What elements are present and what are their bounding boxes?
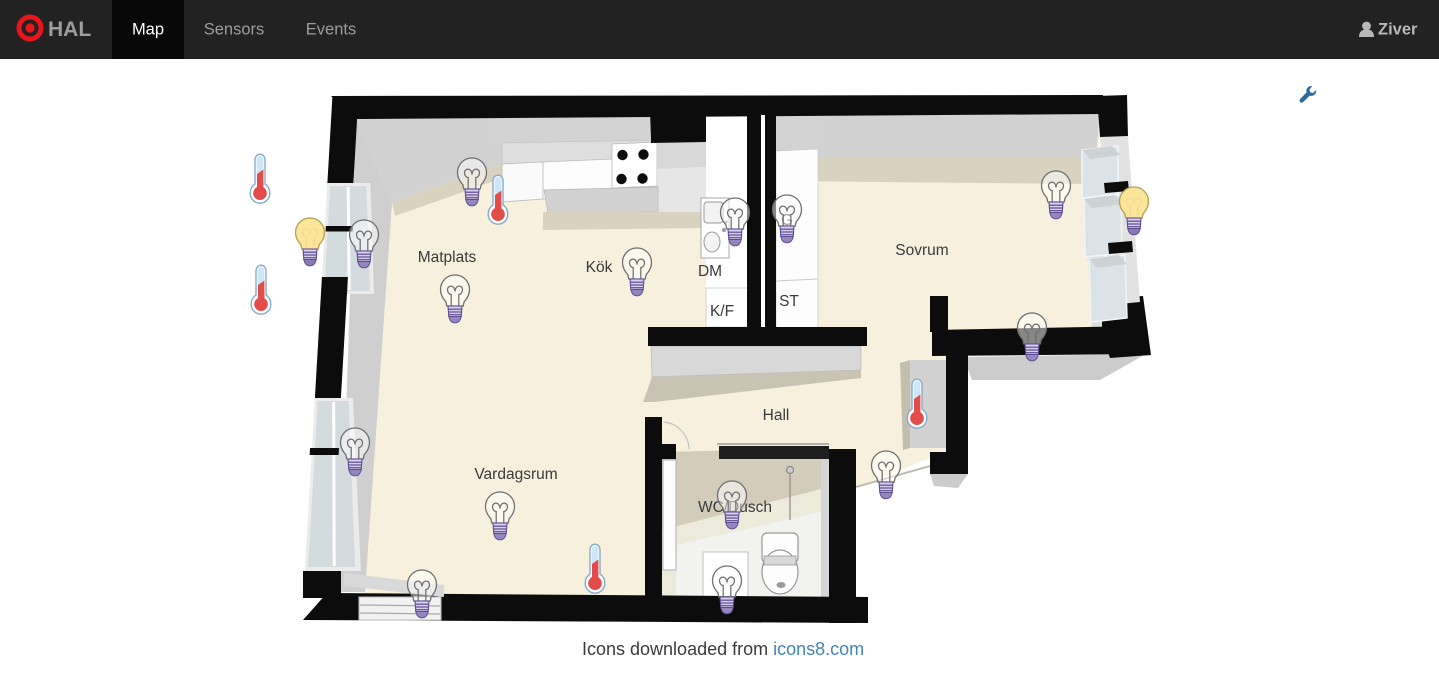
svg-text:Map: Map	[132, 21, 164, 39]
svg-text:Kök: Kök	[586, 259, 613, 276]
svg-text:Hall: Hall	[763, 407, 790, 424]
svg-text:Sensors: Sensors	[204, 21, 265, 39]
svg-text:Matplats: Matplats	[418, 249, 477, 266]
svg-text:Events: Events	[306, 21, 356, 39]
svg-text:Vardagsrum: Vardagsrum	[474, 466, 557, 483]
svg-text:Sovrum: Sovrum	[895, 242, 948, 259]
svg-text:ST: ST	[779, 293, 799, 310]
svg-text:HAL: HAL	[48, 18, 91, 41]
svg-text:Icons downloaded from icons8.c: Icons downloaded from icons8.com	[582, 639, 864, 659]
svg-text:DM: DM	[698, 263, 722, 280]
svg-text:Ziver: Ziver	[1378, 21, 1418, 39]
svg-text:K/F: K/F	[710, 303, 734, 320]
